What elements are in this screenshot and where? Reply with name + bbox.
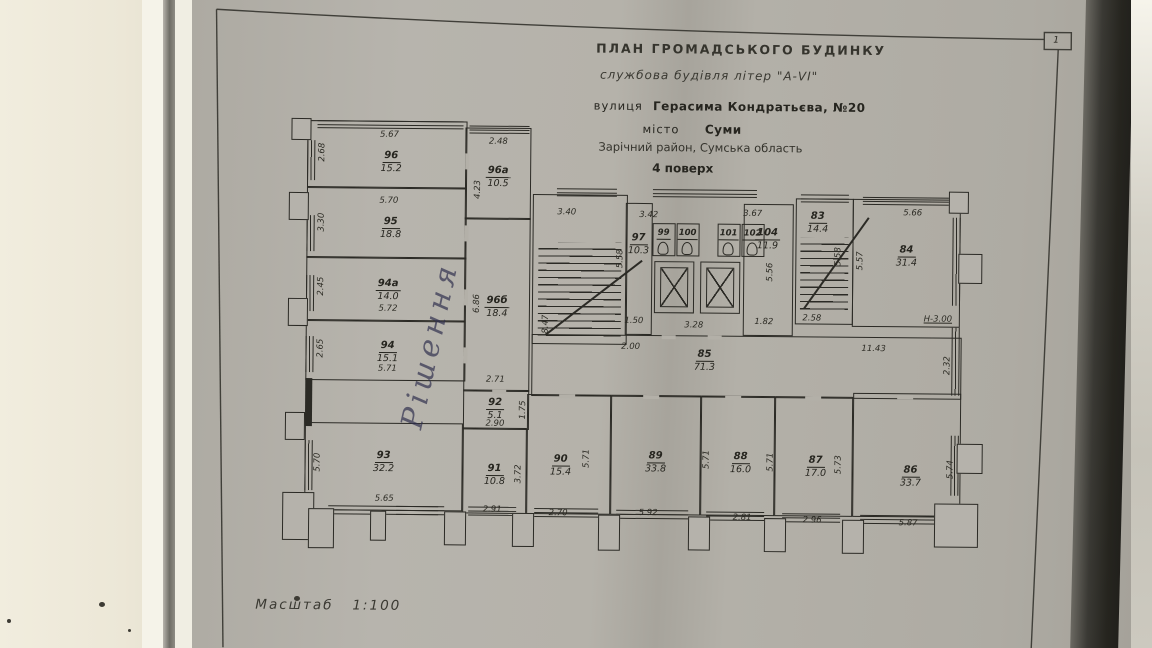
room-label-101: 101 — [719, 220, 739, 255]
scale-label: Масштаб — [255, 597, 333, 614]
pier-column — [291, 118, 311, 140]
dim-label: 2.58 — [802, 313, 821, 323]
dim-label: 5.92 — [639, 508, 658, 518]
room-label-95: 9518.8 — [380, 209, 401, 241]
pier-column — [370, 511, 386, 541]
room-label-88: 8816.0 — [730, 444, 751, 476]
door-gap — [725, 396, 741, 400]
window — [306, 215, 314, 251]
dim-label: 2.32 — [942, 356, 952, 375]
corridor-85 — [531, 334, 962, 400]
pier-column — [957, 444, 983, 474]
dim-label: 3.67 — [743, 209, 762, 219]
room-label-83: 8314.4 — [807, 204, 828, 236]
door-gap — [464, 289, 468, 305]
door-gap — [662, 335, 676, 339]
district-line: Зарічний район, Сумська область — [598, 140, 802, 156]
room-label-85: 8571.3 — [694, 342, 715, 374]
dim-label: 2.45 — [316, 277, 326, 296]
dim-label: 5.87 — [899, 518, 918, 528]
dim-label: 2.81 — [733, 513, 752, 523]
dim-label: 2.71 — [486, 375, 505, 385]
dim-label: 5.56 — [765, 263, 775, 282]
dim-label: 5.74 — [945, 460, 955, 479]
city-value: Суми — [705, 123, 742, 137]
door-gap — [463, 347, 467, 363]
dim-label: 2.96 — [803, 515, 822, 525]
dim-label: 2.65 — [315, 339, 325, 358]
door-gap — [643, 395, 659, 399]
dim-label: 3.30 — [317, 213, 327, 232]
city-line: місто Суми — [642, 118, 741, 138]
room-label-96a: 96а10.5 — [486, 158, 511, 190]
dim-label: 5.67 — [380, 130, 399, 140]
window — [396, 506, 444, 515]
dim-label: 5.65 — [375, 494, 394, 504]
pier-column — [444, 511, 466, 545]
room-label-104: 10411.9 — [755, 220, 780, 252]
pier-column — [288, 298, 308, 326]
room-label-87: 8717.0 — [805, 448, 826, 480]
door-gap — [805, 396, 821, 400]
window — [653, 189, 757, 198]
door-gap — [559, 394, 575, 398]
photo-canvas: 1 ПЛАН ГРОМАДСЬКОГО БУДИНКУ службова буд… — [0, 0, 1152, 648]
dim-label: 5.66 — [903, 208, 922, 218]
pier-column — [949, 192, 969, 214]
scale-note: Масштаб 1:100 — [255, 597, 401, 614]
dim-label: 2.70 — [549, 508, 568, 518]
door-gap — [465, 225, 469, 241]
dim-label: 1.75 — [518, 400, 528, 419]
pier-column — [512, 513, 534, 547]
toilet-icon — [723, 242, 734, 255]
dim-label: 5.58 — [615, 249, 625, 268]
toilet-icon — [658, 242, 669, 255]
pier-column — [289, 192, 309, 220]
room-label-93: 9332.2 — [373, 443, 394, 475]
pier-column — [308, 508, 334, 548]
pier-column — [764, 518, 786, 552]
door-gap — [897, 395, 913, 399]
dim-label: 3.40 — [557, 207, 576, 217]
pier-column — [842, 520, 864, 554]
dim-label: 6.86 — [472, 294, 482, 313]
room-label-97: 9710.3 — [628, 225, 649, 257]
window — [304, 440, 312, 490]
pier-column — [598, 515, 620, 551]
pier-column — [285, 412, 305, 440]
dim-label: 5.73 — [834, 455, 844, 474]
dim-label: 3.42 — [639, 210, 658, 220]
dim-label: 5.71 — [378, 364, 397, 374]
dim-label: 8.47 — [541, 315, 551, 334]
dim-label: 2.48 — [489, 137, 508, 147]
dim-label: 1.82 — [754, 317, 773, 327]
dim-label: 5.70 — [313, 453, 323, 472]
dim-label: 5.70 — [379, 196, 398, 206]
room-label-99: 99 — [656, 220, 670, 255]
scale-value: 1:100 — [352, 597, 401, 613]
window — [469, 125, 529, 134]
street-line: вулиця Герасима Кондратьєва, №20 — [594, 95, 866, 116]
building-subtitle: службова будівля літер "А-VI" — [600, 68, 818, 84]
dim-label: 5.72 — [378, 304, 397, 314]
pier-column — [688, 516, 710, 550]
room-label-86: 8633.7 — [900, 458, 921, 490]
pier-column — [934, 504, 978, 548]
window — [318, 120, 464, 129]
room-label-89: 8933.8 — [645, 443, 666, 475]
dim-label: 5.57 — [855, 251, 865, 270]
dim-label: 3.28 — [684, 320, 703, 330]
city-prefix: місто — [642, 122, 679, 136]
dim-label: 1.50 — [624, 316, 643, 326]
dim-label: 2.00 — [621, 342, 640, 352]
elevator-car-2 — [706, 268, 734, 308]
room-label-94a: 94а14.0 — [376, 271, 401, 303]
window — [801, 194, 849, 202]
window — [305, 336, 313, 372]
room-label-96b: 96б18.4 — [484, 288, 509, 320]
dim-label: 2.91 — [483, 505, 502, 515]
room-label-91: 9110.8 — [484, 456, 505, 488]
room-label-92: 925.1 — [486, 390, 504, 422]
pier-column — [958, 254, 982, 284]
window — [863, 197, 955, 206]
room-label-100: 100 — [678, 220, 698, 255]
door-gap — [465, 153, 469, 169]
plan-title: ПЛАН ГРОМАДСЬКОГО БУДИНКУ — [596, 41, 886, 59]
elevator-car-1 — [660, 267, 688, 307]
dim-label: 2.68 — [317, 143, 327, 162]
page-number: 1 — [1053, 36, 1059, 46]
elevation-label: Н-3.00 — [924, 314, 952, 324]
room-label-84: 8431.4 — [896, 238, 917, 270]
street-prefix: вулиця — [594, 99, 643, 113]
dim-label: 4.23 — [473, 180, 483, 199]
room-label-90: 9015.4 — [550, 447, 571, 479]
dim-label: 3.72 — [513, 464, 523, 483]
room-label-96: 9615.2 — [381, 143, 402, 175]
dim-label: 5.71 — [766, 453, 776, 472]
dim-label: 5.58 — [833, 247, 843, 266]
floor-line: 4 поверх — [652, 161, 713, 176]
dim-label: 11.43 — [861, 344, 885, 354]
room-label-94: 9415.1 — [377, 333, 398, 365]
dim-label: 5.71 — [702, 450, 712, 469]
window — [557, 188, 617, 197]
wall-segment — [305, 378, 312, 426]
dim-label: 2.90 — [485, 419, 504, 429]
floor-plan-print: 1 ПЛАН ГРОМАДСЬКОГО БУДИНКУ службова буд… — [0, 0, 1152, 648]
toilet-icon — [682, 242, 693, 255]
street-value: Герасима Кондратьєва, №20 — [653, 99, 866, 115]
window — [307, 140, 315, 180]
door-gap — [708, 336, 722, 340]
room-86 — [852, 393, 961, 518]
dim-label: 5.71 — [582, 449, 592, 468]
